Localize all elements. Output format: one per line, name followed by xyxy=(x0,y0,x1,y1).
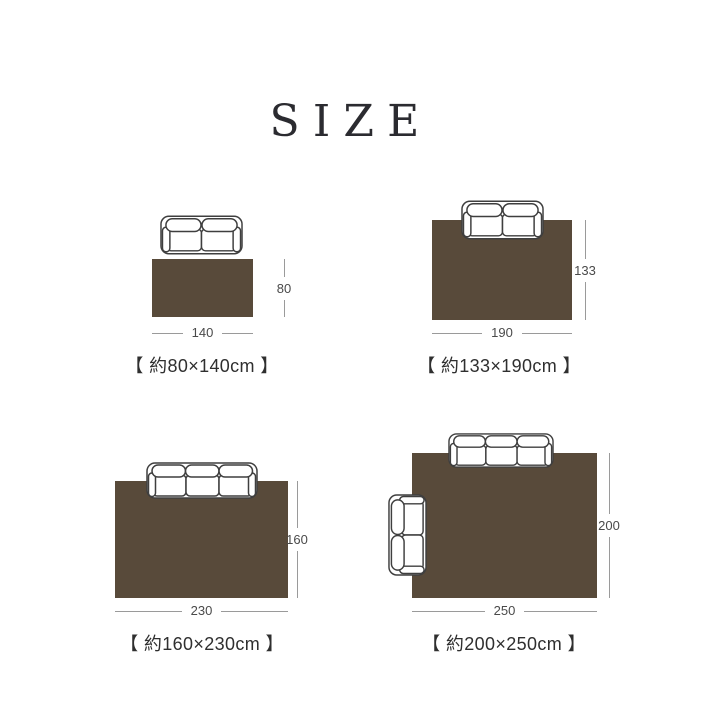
size-diagram-200x250: 200 250 【 約200×250cm 】 xyxy=(0,0,720,720)
width-dimension-250: 250 xyxy=(412,603,597,619)
dimension-line xyxy=(412,611,485,612)
size-caption: 【 約200×250cm 】 xyxy=(384,630,624,656)
two-seat-sofa-side-view xyxy=(388,493,427,577)
width-label: 250 xyxy=(485,603,525,618)
size-chart: SIZE 80 140 【 約80×140cm 】 xyxy=(0,0,720,720)
three-seat-sofa-top-view xyxy=(445,433,557,468)
height-dimension-200: 200 xyxy=(594,453,624,598)
two-seat-sofa-vertical-icon xyxy=(388,493,427,577)
dimension-line xyxy=(524,611,597,612)
height-label: 200 xyxy=(598,514,620,537)
dimension-line xyxy=(609,453,610,514)
rug-200x250 xyxy=(412,453,597,598)
three-seat-sofa-icon xyxy=(445,433,557,468)
dimension-line xyxy=(609,537,610,598)
